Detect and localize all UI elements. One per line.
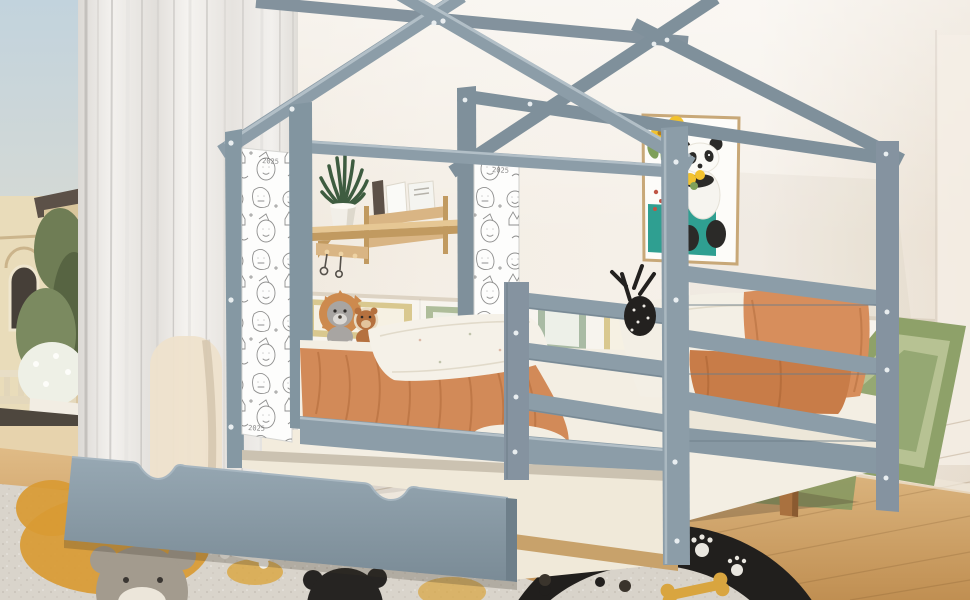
front-left-outer-post <box>225 129 244 468</box>
back-right-post <box>876 141 899 512</box>
product-photo: 2025 2025 2025 2025 <box>0 0 970 600</box>
flower-bush <box>18 342 86 406</box>
doodle-year-text: 2025 <box>492 166 509 175</box>
doodle-year-text: 2025 <box>262 157 279 166</box>
bedroom-scene: 2025 2025 2025 2025 <box>0 0 970 600</box>
doodle-panel-front: 2025 2025 <box>242 148 292 442</box>
doodle-year-text: 2025 <box>248 424 265 433</box>
trundle-caster <box>539 574 551 586</box>
trundle-caster <box>619 580 631 592</box>
